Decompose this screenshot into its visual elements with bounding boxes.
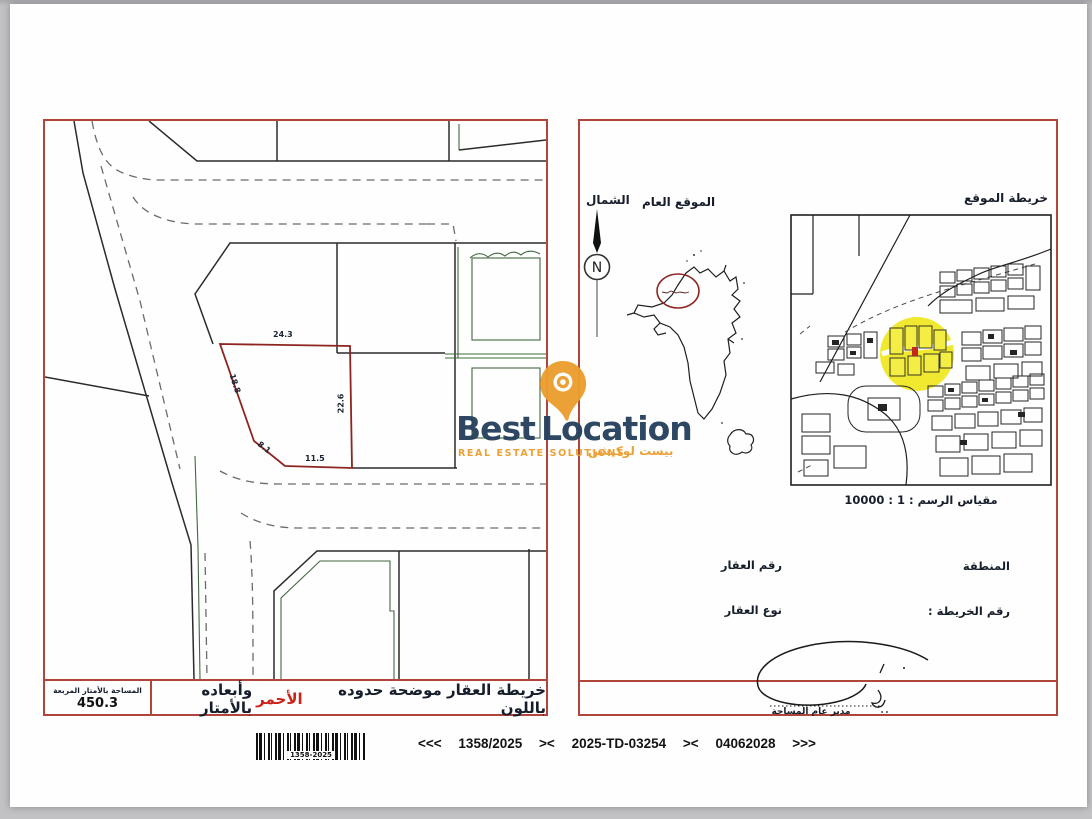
- doc-segment-separator-1: ><: [539, 736, 555, 751]
- compass-icon: N: [582, 207, 612, 339]
- doc-segment-date-code: 04062028: [715, 736, 775, 751]
- barcode-label: 1358-2025: [287, 751, 335, 759]
- document-number-line: <<< 1358/2025 >< 2025-TD-03254 >< 040620…: [418, 736, 816, 751]
- scanned-document: 24.3 18.8 22.6 8.1 11.5 المساحة بالأمتار…: [0, 0, 1092, 819]
- dimension-label-bottom: 11.5: [305, 454, 325, 463]
- barcode: 1358-2025: [256, 733, 366, 760]
- field-property-type-label: نوع العقار: [725, 603, 782, 617]
- left-panel-footer: المساحة بالأمتار المربعة 450.3 خريطة الع…: [45, 679, 546, 716]
- field-map-number-label: رقم الخريطة :: [928, 604, 1010, 618]
- area-title: المساحة بالأمتار المربعة: [53, 686, 142, 695]
- small-island: [728, 430, 754, 455]
- document-page: 24.3 18.8 22.6 8.1 11.5 المساحة بالأمتار…: [10, 4, 1087, 807]
- location-ring: [657, 274, 699, 308]
- area-box: المساحة بالأمتار المربعة 450.3: [45, 681, 152, 716]
- doc-segment-arrow-right: >>>: [792, 736, 816, 751]
- signature: [732, 640, 937, 732]
- area-value: 450.3: [77, 696, 118, 711]
- doc-segment-reference: 2025-TD-03254: [572, 736, 667, 751]
- brand-name: BestLocation: [456, 412, 692, 445]
- surveyed-parcel-outline: [220, 344, 352, 468]
- general-location-label: الموقع العام: [642, 195, 715, 209]
- note-suffix: وأبعاده بالأمتار: [152, 681, 252, 717]
- map-note: خريطة العقار موضحة حدوده باللون الأحمر و…: [152, 681, 546, 716]
- brand-name-first: Best: [456, 409, 535, 448]
- doc-segment-case-number: 1358/2025: [458, 736, 522, 751]
- doc-segment-separator-2: ><: [683, 736, 699, 751]
- field-property-number-label: رقم العقار: [721, 558, 782, 572]
- target-parcel-marker: [912, 347, 918, 356]
- dimension-label-top: 24.3: [273, 330, 293, 339]
- location-map-label: خريطة الموقع: [964, 191, 1048, 205]
- brand-tagline-arabic: بيست لوكيشن: [588, 444, 673, 458]
- note-prefix: خريطة العقار موضحة حدوده باللون: [307, 681, 546, 717]
- doc-segment-arrow-left: <<<: [418, 736, 442, 751]
- detail-location-map: [790, 214, 1052, 486]
- north-label: الشمال: [586, 193, 630, 207]
- note-highlight: الأحمر: [256, 690, 303, 708]
- dimension-label-right: 22.6: [336, 394, 345, 414]
- brand-logo: BestLocation REAL ESTATE SOLUTIONS بيست …: [456, 360, 668, 466]
- field-region-label: المنطقة: [963, 559, 1010, 573]
- brand-name-second: Location: [541, 409, 692, 448]
- scale-label: مقياس الرسم : 1 : 10000: [792, 493, 1050, 507]
- compass-letter: N: [592, 260, 602, 276]
